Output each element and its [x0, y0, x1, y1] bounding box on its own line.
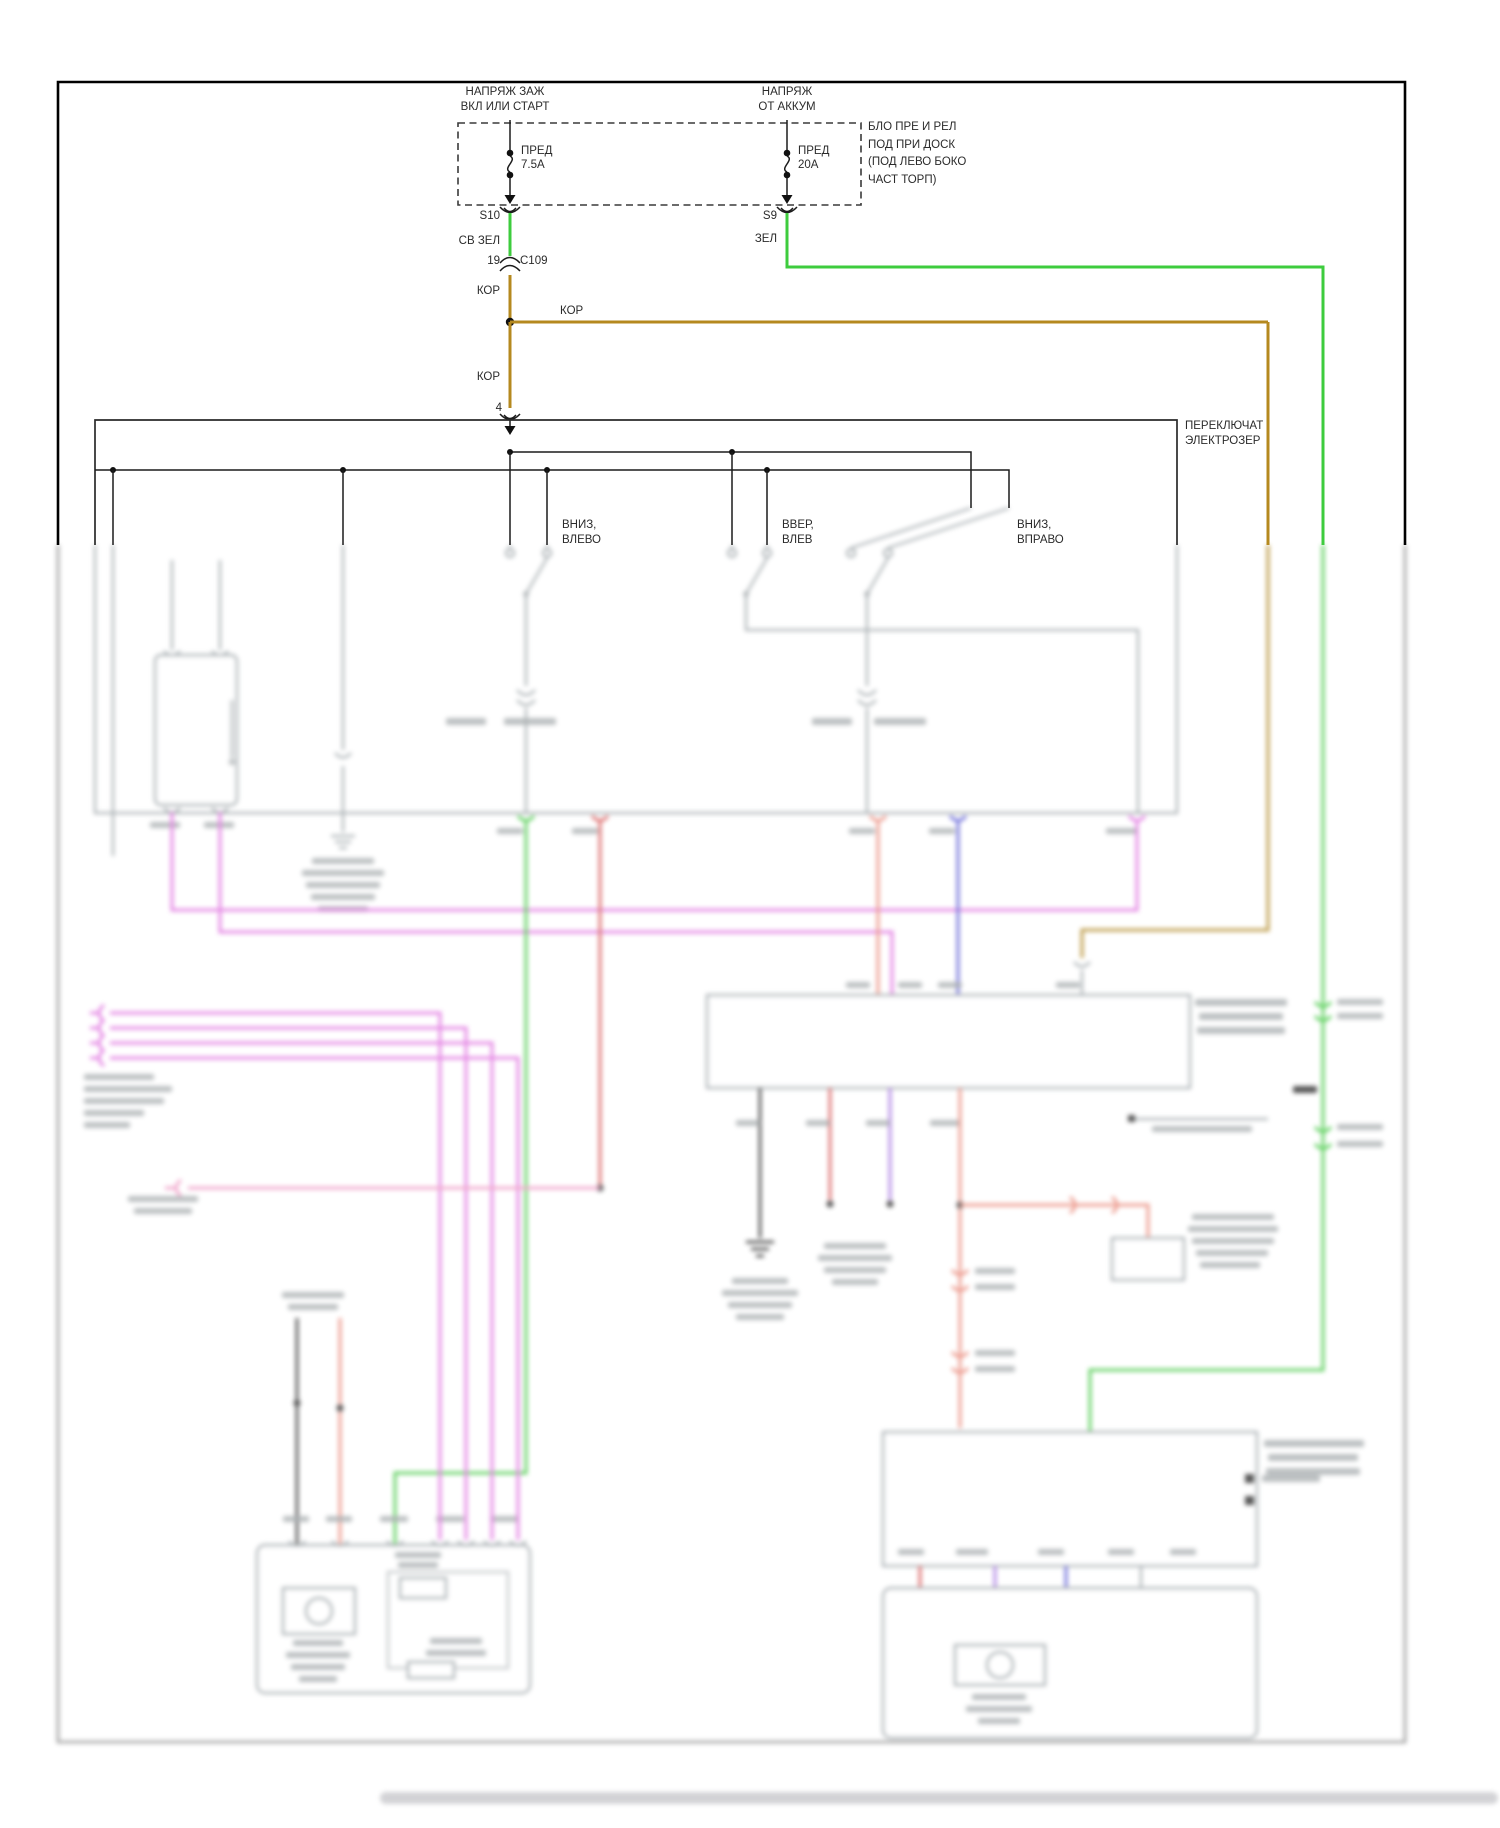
block-label-line4: ЧАСТ ТОРП) [868, 172, 966, 190]
pin-4-label: 4 [496, 401, 502, 416]
wire-brown-label-a: КОР [477, 284, 500, 299]
switch-pos2-line1: ВВЕР, [782, 518, 814, 533]
switch-pos1-line1: ВНИЗ, [562, 518, 601, 533]
fuse-block-location-label: БЛО ПРЕ И РЕЛ ПОД ПРИ ДОСК (ПОД ЛЕВО БОК… [868, 119, 966, 189]
wire-light-green-label: СВ ЗЕЛ [459, 234, 500, 249]
fuse2-label: ПРЕД 20А [798, 145, 829, 172]
block-label-line1: БЛО ПРЕ И РЕЛ [868, 119, 966, 137]
block-label-line3: (ПОД ЛЕВО БОКО [868, 154, 966, 172]
battery-voltage-line1: НАПРЯЖ [758, 85, 815, 100]
wire-brown-label-b: КОР [560, 304, 583, 319]
switch-name-label: ПЕРЕКЛЮЧАТ ЭЛЕКТРОЗЕР [1185, 419, 1263, 449]
fuse2-rating: 20А [798, 159, 829, 173]
green-wire [787, 213, 1323, 545]
switch-pos2-line2: ВЛЕВ [782, 533, 814, 548]
switch-pos1-line2: ВЛЕВО [562, 533, 601, 548]
battery-voltage-label: НАПРЯЖ ОТ АККУМ [758, 85, 815, 115]
brown-wire [500, 275, 1268, 545]
connector-c109-label: C109 [520, 254, 548, 269]
wire-green-label: ЗЕЛ [755, 232, 777, 247]
splice-s10-label: S10 [480, 209, 500, 224]
battery-voltage-line2: ОТ АККУМ [758, 100, 815, 115]
switch-pos1-label: ВНИЗ, ВЛЕВО [562, 518, 601, 548]
wiring-diagram-page: НАПРЯЖ ЗАЖ ВКЛ ИЛИ СТАРТ НАПРЯЖ ОТ АККУМ… [0, 0, 1500, 1828]
fuse1-label: ПРЕД 7.5А [521, 145, 552, 172]
fuse-7-5a [500, 120, 520, 213]
light-green-wire [500, 213, 520, 271]
block-label-line2: ПОД ПРИ ДОСК [868, 137, 966, 155]
ignition-voltage-line2: ВКЛ ИЛИ СТАРТ [461, 100, 550, 115]
switch-pos3-line2: ВПРАВО [1017, 533, 1064, 548]
switch-pos3-line1: ВНИЗ, [1017, 518, 1064, 533]
switch-name-line1: ПЕРЕКЛЮЧАТ [1185, 419, 1263, 434]
ignition-voltage-line1: НАПРЯЖ ЗАЖ [461, 85, 550, 100]
sharp-schematic-layer [0, 0, 1500, 1828]
pin-19-label: 19 [487, 254, 500, 269]
switch-name-line2: ЭЛЕКТРОЗЕР [1185, 434, 1263, 449]
fuse2-name: ПРЕД [798, 145, 829, 159]
ignition-voltage-label: НАПРЯЖ ЗАЖ ВКЛ ИЛИ СТАРТ [461, 85, 550, 115]
switch-pos2-label: ВВЕР, ВЛЕВ [782, 518, 814, 548]
fuse1-rating: 7.5А [521, 159, 552, 173]
fuse1-name: ПРЕД [521, 145, 552, 159]
switch-pos3-label: ВНИЗ, ВПРАВО [1017, 518, 1064, 548]
switch-box [95, 420, 1177, 545]
splice-s9-label: S9 [763, 209, 777, 224]
fuse-20a [777, 120, 797, 213]
wire-brown-label-c: КОР [477, 370, 500, 385]
